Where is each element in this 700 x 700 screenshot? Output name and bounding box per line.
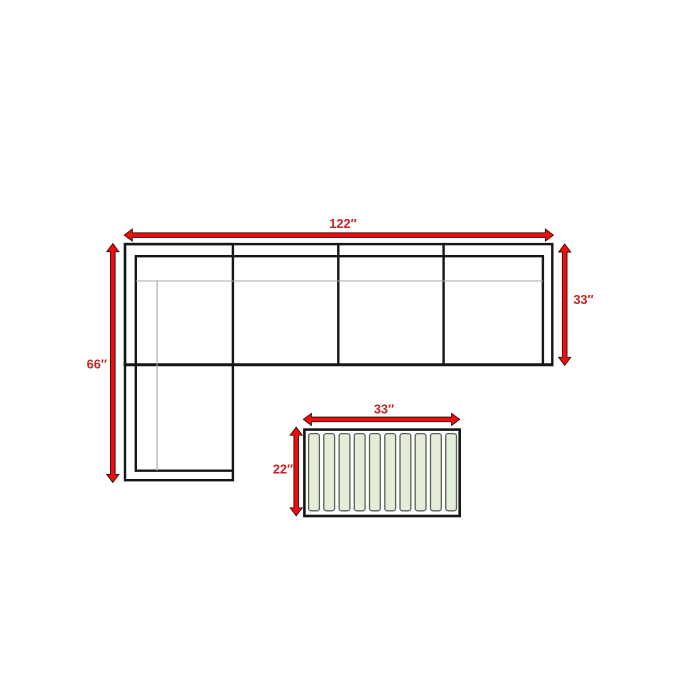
svg-text:66″: 66″ [87, 356, 107, 371]
svg-text:33″: 33″ [374, 402, 394, 417]
svg-text:33″: 33″ [573, 292, 593, 307]
svg-text:122″: 122″ [329, 216, 356, 231]
svg-text:22″: 22″ [273, 462, 293, 477]
